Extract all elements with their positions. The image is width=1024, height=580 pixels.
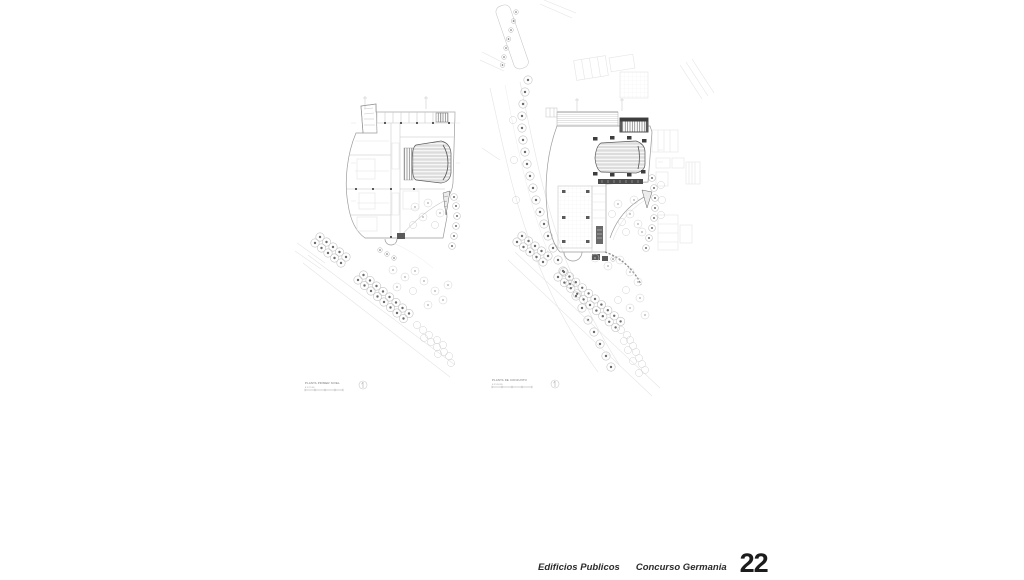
building-site [546,98,666,261]
plan-caption: PLANTA DE CONJUNTO [492,378,528,382]
scale-bar [305,389,343,391]
flytower-hatched-block [620,118,648,132]
hedge-cluster [617,326,648,376]
auditorium [404,141,451,183]
left-floor-plan-drawing: PLANTA PRIMER NIVEL 0 1 2 5 10 [293,93,468,398]
page-number: 22 [740,548,768,579]
stair-core [596,226,603,244]
presentation-sheet: PLANTA PRIMER NIVEL 0 1 2 5 10 [0,0,1024,580]
building-footprint [346,104,455,245]
north-arrow-icon [551,380,559,388]
competition-title: Concurso Germania [636,562,727,573]
caption-block: PLANTA PRIMER NIVEL 0 1 2 5 10 [305,381,367,391]
scale-bar [492,386,532,388]
ramp-wedge [443,191,450,215]
landscape [508,232,660,396]
roads [508,252,660,396]
corridor-strip [592,186,606,252]
arc-hedge [605,252,641,285]
scattered-trees [591,254,649,319]
apse-semicircle [564,252,582,261]
landscape [295,233,455,377]
median-trees [500,10,518,68]
auditorium [593,136,647,177]
scattered-trees [378,248,452,309]
plan-caption: PLANTA PRIMER NIVEL [305,381,340,385]
entrance [385,233,405,245]
roads [295,243,455,377]
caption-block: PLANTA DE CONJUNTO 0 2 5 10 20 [492,378,559,388]
right-site-plan-drawing: PLANTA DE CONJUNTO 0 2 5 10 20 [480,0,730,400]
tree-column-right [449,194,461,250]
stage [404,148,413,180]
courtyard [399,191,450,238]
tree-band-main [354,271,413,323]
median-strip [494,3,530,70]
hall-paving [558,186,592,261]
sheet-footer: Edificios Publicos Concurso Germania 22 [538,546,768,577]
top-room-strip [377,112,455,123]
tree-row-upper-left [311,233,350,267]
plan-scale-text: 0 1 2 5 10 [305,387,315,389]
canopy-strip [546,108,618,126]
project-title: Edificios Publicos [538,562,620,573]
gallery-band [598,179,643,184]
plan-scale-text: 0 2 5 10 20 [492,384,503,386]
service-core-hatched [436,113,448,122]
north-arrow-icon [359,381,367,389]
courtyard [608,190,652,240]
